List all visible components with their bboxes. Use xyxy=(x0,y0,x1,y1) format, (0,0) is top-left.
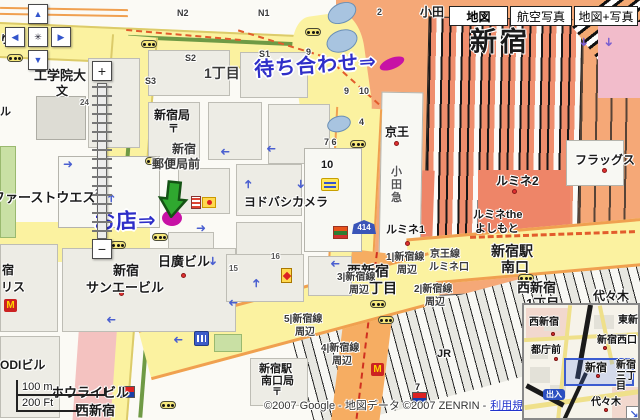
exit-label: 4 xyxy=(359,118,364,128)
one-way-arrow-icon: ➜ xyxy=(578,37,590,47)
inset-station-dot xyxy=(596,374,600,378)
map-label: 16 xyxy=(271,253,280,262)
poi-icon xyxy=(281,268,292,283)
exit-label: N2 xyxy=(177,9,189,19)
exit-label: 10 xyxy=(359,87,369,97)
exit-label: 2|新宿線 xyxy=(414,285,452,296)
pan-left-button[interactable]: ◀ xyxy=(5,27,25,47)
map-label: 新宿駅 xyxy=(491,244,533,259)
map-label: サンエービル xyxy=(86,281,164,295)
inset-label: 西新宿 xyxy=(529,318,559,329)
map-label: よしもと xyxy=(475,224,519,236)
map-label: ODIビル xyxy=(0,359,45,372)
shop-icon xyxy=(202,197,216,208)
map-label: JR xyxy=(437,349,451,361)
poi-dot xyxy=(394,141,399,146)
exit-label: 周辺 xyxy=(425,298,445,309)
traffic-light-icon xyxy=(141,40,157,48)
park xyxy=(214,334,242,352)
scale-metric: 100 m xyxy=(22,382,53,394)
map-label: 文 xyxy=(56,85,68,98)
map-label: ル xyxy=(0,107,11,119)
scale-imperial: 200 Ft xyxy=(22,398,53,410)
mcdonalds-icon: M xyxy=(4,299,17,312)
seven-eleven-icon xyxy=(333,226,348,239)
pink-building xyxy=(598,22,640,98)
inset-label: 新宿 xyxy=(585,363,607,375)
one-way-arrow-icon: ➜ xyxy=(196,222,206,234)
exit-label: 周辺 xyxy=(349,286,369,297)
exit-label: 1|新宿線 xyxy=(386,253,424,264)
map-label: 京王 xyxy=(385,126,409,139)
inset-label: 東新宿 xyxy=(618,316,640,327)
mcdonalds-icon: M xyxy=(371,363,384,376)
poi-dot xyxy=(405,241,410,246)
map-label: 西新宿 xyxy=(76,404,115,418)
map-label: ルミネ1 xyxy=(386,225,425,237)
pan-right-button[interactable]: ▶ xyxy=(51,27,71,47)
poi-dot xyxy=(512,189,517,194)
map-label: 新宿 xyxy=(172,143,196,156)
map-label: ルミネthe xyxy=(473,210,523,222)
one-way-arrow-icon: ➜ xyxy=(63,158,73,170)
map-label: 宿 xyxy=(2,264,14,277)
pan-center-button[interactable]: ✳ xyxy=(28,27,48,47)
exit-label: 周辺 xyxy=(295,328,315,339)
map-type-button-hybrid[interactable]: 地図+写真 xyxy=(574,6,638,26)
exit-label: S3 xyxy=(145,77,156,87)
postal-mark: 〒 xyxy=(272,388,282,399)
one-way-arrow-icon: ➜ xyxy=(250,278,262,288)
exit-label: 2 xyxy=(377,8,382,18)
poi-dot xyxy=(602,168,607,173)
poi-dot xyxy=(181,273,186,278)
overview-inset[interactable]: 西新宿 東新宿 新宿西口 都庁前 新宿 新宿三丁目 代々木 出入 ↘ xyxy=(522,303,640,420)
map-label: 1丁目 xyxy=(204,66,240,81)
exit-label: 5|新宿線 xyxy=(284,315,322,326)
map-label: 24 xyxy=(80,99,89,108)
zoom-in-button[interactable]: + xyxy=(92,61,112,81)
inset-station-dot xyxy=(604,408,608,412)
map-label: ヨドバシカメラ xyxy=(244,196,328,209)
inset-station-dot xyxy=(551,332,555,336)
inset-label: 代々木 xyxy=(591,398,621,409)
map-label: 京王線 xyxy=(430,250,460,261)
map-type-button-map[interactable]: 地図 xyxy=(449,6,508,26)
inset-station-dot xyxy=(603,346,607,350)
map-label: 工学院大 xyxy=(34,69,86,83)
traffic-light-icon xyxy=(378,316,394,324)
traffic-light-icon xyxy=(110,241,126,249)
zoom-slider-ticks[interactable] xyxy=(92,86,112,236)
exit-label: 周辺 xyxy=(332,357,352,368)
traffic-light-icon xyxy=(350,140,366,148)
zoom-out-button[interactable]: − xyxy=(92,239,112,259)
traffic-light-icon xyxy=(160,401,176,409)
map-label: 郵便局前 xyxy=(152,158,200,171)
inset-label: 新宿三丁目 xyxy=(616,361,640,393)
map-label: 新宿 xyxy=(113,264,139,278)
one-way-arrow-icon: ➜ xyxy=(173,334,183,346)
attribution: ©2007 Google - 地図データ ©2007 ZENRIN - 利用規約 xyxy=(264,401,534,413)
green-arrow-annotation xyxy=(155,178,191,219)
pan-up-button[interactable]: ▲ xyxy=(28,4,48,24)
map-label: ルミネ2 xyxy=(496,175,539,188)
bank-icon xyxy=(321,178,339,191)
postal-mark: 〒 xyxy=(168,124,179,136)
one-way-arrow-icon: ➜ xyxy=(603,37,615,47)
one-way-arrow-icon: ➜ xyxy=(228,297,238,309)
map-label: 新宿局 xyxy=(154,109,190,122)
one-way-arrow-icon: ➜ xyxy=(220,146,230,158)
building-block xyxy=(36,96,86,140)
one-way-arrow-icon: ➜ xyxy=(266,143,276,155)
map-label: 代々木 xyxy=(593,290,629,303)
traffic-light-icon xyxy=(370,300,386,308)
map-label: リス xyxy=(1,281,25,294)
map-canvas[interactable]: ➜ ➜ ➜ ➜ ➜ ➜ ➜ ➜ ➜ ➜ ➜ ➜ ➜ ➜ ➜ 414 M M 工学… xyxy=(0,0,640,420)
building-block xyxy=(208,102,262,160)
map-label: 15 xyxy=(229,265,238,274)
inset-label: 都庁前 xyxy=(531,346,561,357)
map-label: ルミネ口 xyxy=(429,263,469,274)
exit-label: 9 xyxy=(344,87,349,97)
map-label: 10 xyxy=(321,160,333,172)
exit-label: N1 xyxy=(258,9,270,19)
exit-label: 7 6 xyxy=(324,138,337,148)
exit-label: 周辺 xyxy=(397,266,417,277)
copyright-text: ©2007 Google - 地図データ ©2007 ZENRIN - xyxy=(264,401,486,413)
inset-label: 新宿西口 xyxy=(597,336,637,347)
map-label: 7 xyxy=(415,383,420,393)
map-label: 西新宿 xyxy=(517,281,556,295)
pan-down-button[interactable]: ▼ xyxy=(28,50,48,70)
inset-station-dot xyxy=(554,357,558,361)
map-label: 小田急 xyxy=(391,166,403,205)
map-label: 小田 xyxy=(420,6,444,19)
traffic-light-icon xyxy=(7,54,23,62)
one-way-arrow-icon: ➜ xyxy=(106,314,116,326)
traffic-light-icon xyxy=(152,233,168,241)
entrance-badge: 出入 xyxy=(543,389,565,400)
shop-icon xyxy=(191,196,201,209)
inset-block xyxy=(530,367,550,383)
one-way-arrow-icon: ➜ xyxy=(242,179,254,189)
one-way-arrow-icon: ➜ xyxy=(295,179,307,189)
map-type-button-satellite[interactable]: 航空写真 xyxy=(510,6,572,26)
station-label-shinjuku: 新宿 xyxy=(470,28,530,57)
exit-label: 4|新宿線 xyxy=(321,344,359,355)
exit-label: S2 xyxy=(185,54,196,64)
traffic-light-icon xyxy=(305,28,321,36)
one-way-arrow-icon: ➜ xyxy=(330,258,340,270)
map-label: 日廣ビル xyxy=(158,255,210,269)
inset-collapse-button[interactable]: ↘ xyxy=(626,406,640,420)
orange-street xyxy=(0,7,128,17)
bank-icon xyxy=(194,331,209,346)
building-block xyxy=(226,254,304,302)
map-label: フラッグス xyxy=(575,154,635,167)
exit-label: 3|新宿線 xyxy=(337,273,375,284)
map-label: 南口 xyxy=(501,260,529,275)
